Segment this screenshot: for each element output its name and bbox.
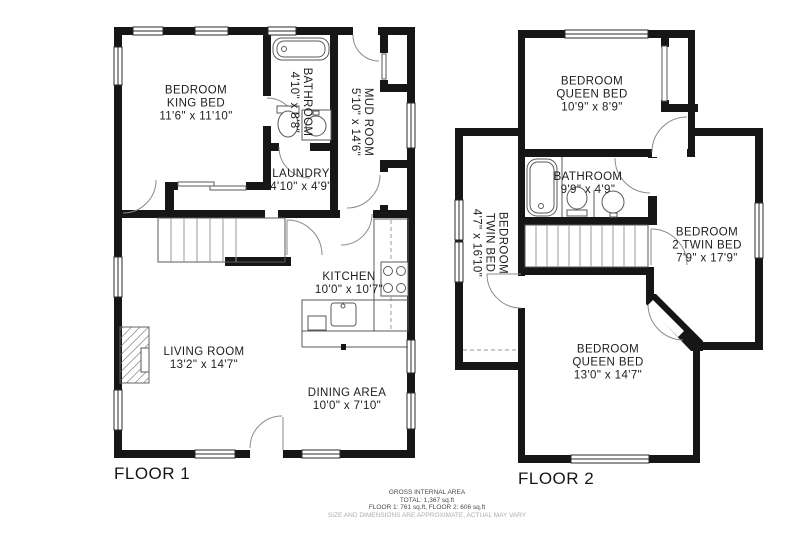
- room-name: BEDROOM: [556, 76, 627, 89]
- floor-areas: FLOOR 1: 761 sq.ft, FLOOR 2: 606 sq.ft: [328, 504, 526, 512]
- room-label-queen-bedroom-upper: BEDROOM QUEEN BED 10'9" x 8'9": [556, 76, 627, 115]
- floor2-label: FLOOR 2: [518, 469, 594, 489]
- room-name: KITCHEN: [315, 271, 383, 284]
- room-name: DINING AREA: [308, 387, 387, 400]
- room-name: BEDROOM: [672, 227, 742, 240]
- room-dimensions: 10'0" x 10'7": [315, 284, 383, 297]
- gross-area-title: GROSS INTERNAL AREA: [328, 489, 526, 497]
- room-label-living-room: LIVING ROOM 13'2" x 14'7": [163, 346, 244, 372]
- room-name: BATHROOM: [554, 171, 623, 184]
- room-dimensions: 4'10" x 4'9": [270, 181, 331, 194]
- closet-door-leaf: [382, 54, 386, 79]
- room-label-bathroom-f2: BATHROOM 9'9" x 4'9": [554, 171, 623, 197]
- room-dimensions: 9'9" x 4'9": [554, 184, 623, 197]
- floor1-stairs: [158, 218, 285, 262]
- toilet-icon: [567, 210, 587, 216]
- floor1-label: FLOOR 1: [114, 464, 190, 484]
- room-name: MUD ROOM: [361, 88, 374, 156]
- room-label-bathroom-f1: BATHROOM 4'10" x 8'8": [287, 68, 313, 137]
- total-area: TOTAL: 1,367 sq.ft: [328, 497, 526, 505]
- room-name: LIVING ROOM: [163, 346, 244, 359]
- closet-door-leaf: [662, 46, 667, 101]
- room-dimensions: 7'9" x 17'9": [672, 253, 742, 266]
- room-name: BEDROOM: [159, 85, 232, 98]
- room-dimensions: 10'9" x 8'9": [556, 102, 627, 115]
- room-label-queen-bedroom-lower: BEDROOM QUEEN BED 13'0" x 14'7": [572, 344, 643, 383]
- room-dimensions: 11'6" x 11'10": [159, 111, 232, 124]
- room-name: 2 TWIN BED: [672, 240, 742, 253]
- room-label-laundry: LAUNDRY 4'10" x 4'9": [270, 168, 331, 194]
- room-name: QUEEN BED: [572, 357, 643, 370]
- room-dimensions: 13'0" x 14'7": [572, 370, 643, 383]
- room-label-mud-room: MUD ROOM 5'10" x 14'6": [348, 88, 374, 156]
- room-dimensions: 4'10" x 8'8": [287, 68, 300, 137]
- floorplan-page: BEDROOM KING BED 11'6" x 11'10" BATHROOM…: [0, 0, 800, 533]
- room-name: BEDROOM: [572, 344, 643, 357]
- floor2-stairs: [525, 225, 648, 267]
- room-name: TWIN BED: [483, 209, 496, 277]
- room-label-kitchen: KITCHEN 10'0" x 10'7": [315, 271, 383, 297]
- room-dimensions: 10'0" x 7'10": [308, 400, 387, 413]
- room-name: BEDROOM: [496, 209, 509, 277]
- appliance-icon: [308, 316, 326, 330]
- kitchen-sink-icon: [331, 303, 356, 326]
- room-name: BATHROOM: [300, 68, 313, 137]
- room-label-twin-bedroom: BEDROOM TWIN BED 4'7" x 16'10": [470, 209, 509, 277]
- room-label-2-twin-bedroom: BEDROOM 2 TWIN BED 7'9" x 17'9": [672, 227, 742, 266]
- room-name: QUEEN BED: [556, 89, 627, 102]
- room-dimensions: 5'10" x 14'6": [348, 88, 361, 156]
- area-summary: GROSS INTERNAL AREA TOTAL: 1,367 sq.ft F…: [328, 489, 526, 519]
- bathtub-icon: [527, 159, 557, 216]
- fireplace: [120, 327, 149, 383]
- floorplan-svg: [0, 0, 800, 533]
- room-name: LAUNDRY: [270, 168, 331, 181]
- room-label-dining-area: DINING AREA 10'0" x 7'10": [308, 387, 387, 413]
- disclaimer: SIZE AND DIMENSIONS ARE APPROXIMATE, ACT…: [328, 512, 526, 520]
- room-label-king-bedroom: BEDROOM KING BED 11'6" x 11'10": [159, 85, 232, 124]
- room-dimensions: 4'7" x 16'10": [470, 209, 483, 277]
- room-dimensions: 13'2" x 14'7": [163, 359, 244, 372]
- room-name: KING BED: [159, 98, 232, 111]
